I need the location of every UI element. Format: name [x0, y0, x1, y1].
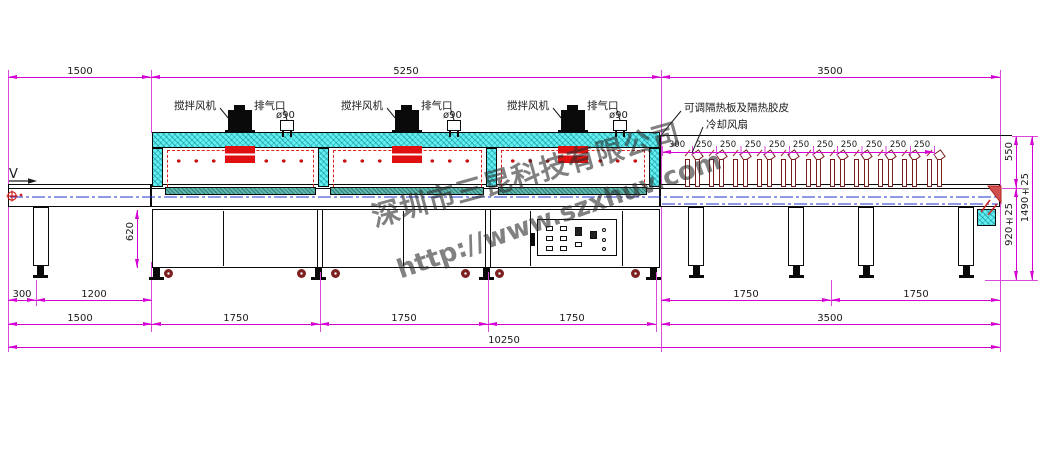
leader-lines [220, 108, 703, 153]
tunnel-oven-engineering-drawing: 1500 5250 3500 V 搅拌风机 搅拌风机 搅拌风机 排气口 排气口 … [0, 0, 1044, 475]
direction-arrow [9, 178, 37, 183]
drive-pulley [981, 186, 1001, 215]
belt-pulley-mark [7, 191, 23, 202]
linework-layer [0, 0, 1044, 475]
